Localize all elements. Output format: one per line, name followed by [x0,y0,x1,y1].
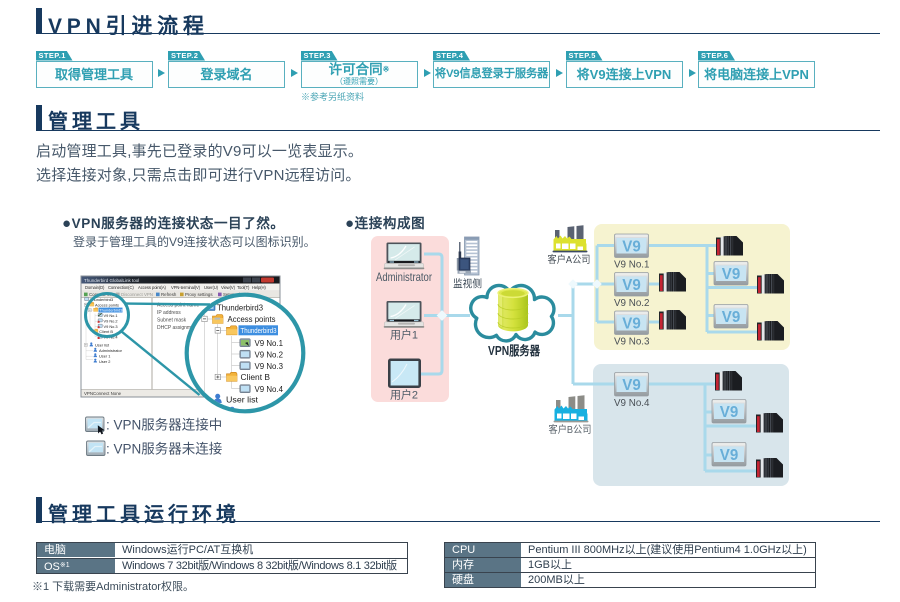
svg-text:客户B公司: 客户B公司 [549,423,592,436]
svg-text:Connection(C): Connection(C) [108,285,134,290]
svg-text:Thunderbird3: Thunderbird3 [241,326,277,335]
svg-text:Tool(T): Tool(T) [237,285,250,290]
svg-text:V9 No.4: V9 No.4 [614,398,650,409]
svg-text:V9 No.3: V9 No.3 [614,337,650,348]
svg-text:User(U): User(U) [204,285,219,290]
svg-text:Client B: Client B [241,373,271,382]
svg-text:View(V): View(V) [221,285,236,290]
svg-text:Thunderbird3: Thunderbird3 [217,304,263,313]
svg-text:Help(H): Help(H) [252,285,266,290]
svg-text:: VPN服务器未连接: : VPN服务器未连接 [106,441,222,457]
svg-text:V9 No.1: V9 No.1 [614,260,650,271]
svg-text:Proxy settings: Proxy settings [185,292,213,297]
svg-text:V9 No.2: V9 No.2 [104,318,118,323]
svg-text:V9 No.3: V9 No.3 [255,362,284,371]
svg-text:用户1: 用户1 [390,328,418,342]
svg-text:监视侧: 监视侧 [453,277,482,290]
svg-text:V9 No.3: V9 No.3 [104,324,118,329]
svg-text:V9 No.1: V9 No.1 [104,313,118,318]
svg-text:V9 No.2: V9 No.2 [614,298,650,309]
svg-text:User 2: User 2 [99,359,110,364]
svg-text:VPNConnect None: VPNConnect None [84,391,122,396]
svg-text:V9 No.4: V9 No.4 [255,385,284,394]
svg-text:V9 No.1: V9 No.1 [255,339,284,348]
svg-text:: VPN服务器连接中: : VPN服务器连接中 [106,417,222,433]
svg-text:User 1: User 1 [99,353,110,358]
svg-text:VPN-terminal(V): VPN-terminal(V) [171,285,201,290]
svg-text:Thunderbird3: Thunderbird3 [99,307,122,312]
svg-text:用户2: 用户2 [390,388,418,402]
svg-text:Access points: Access points [228,315,276,324]
svg-text:Subnet mask: Subnet mask [157,318,187,324]
svg-text:Administrator: Administrator [376,270,432,284]
svg-text:Thunderbird GlobalLink tool: Thunderbird GlobalLink tool [84,278,139,283]
svg-text:User list: User list [226,396,259,405]
svg-text:User list: User list [95,343,110,348]
svg-text:VPN服务器: VPN服务器 [488,343,540,358]
svg-text:Domain(D): Domain(D) [85,285,105,290]
svg-text:客户A公司: 客户A公司 [548,253,591,266]
svg-text:Client B: Client B [99,329,113,334]
svg-text:Disconnect VPN: Disconnect VPN [121,292,153,297]
svg-text:Access point(A): Access point(A) [138,285,167,290]
svg-text:V9 No.2: V9 No.2 [255,350,284,359]
svg-text:Refresh: Refresh [161,292,177,297]
svg-text:Administrator: Administrator [99,348,123,353]
svg-text:IP address: IP address [157,310,181,316]
